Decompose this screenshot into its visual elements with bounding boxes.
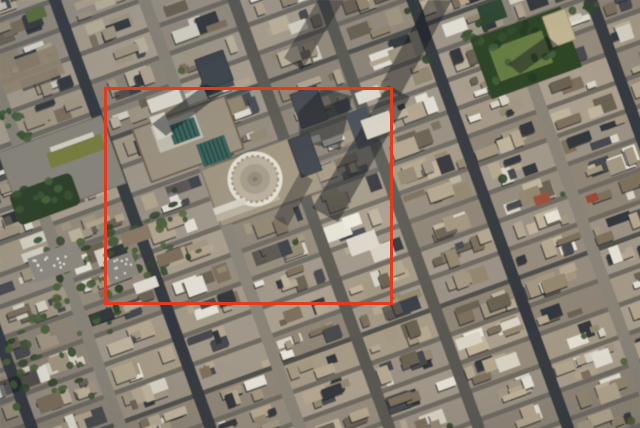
satellite-svg bbox=[0, 0, 640, 428]
map-viewport[interactable] bbox=[0, 0, 640, 428]
